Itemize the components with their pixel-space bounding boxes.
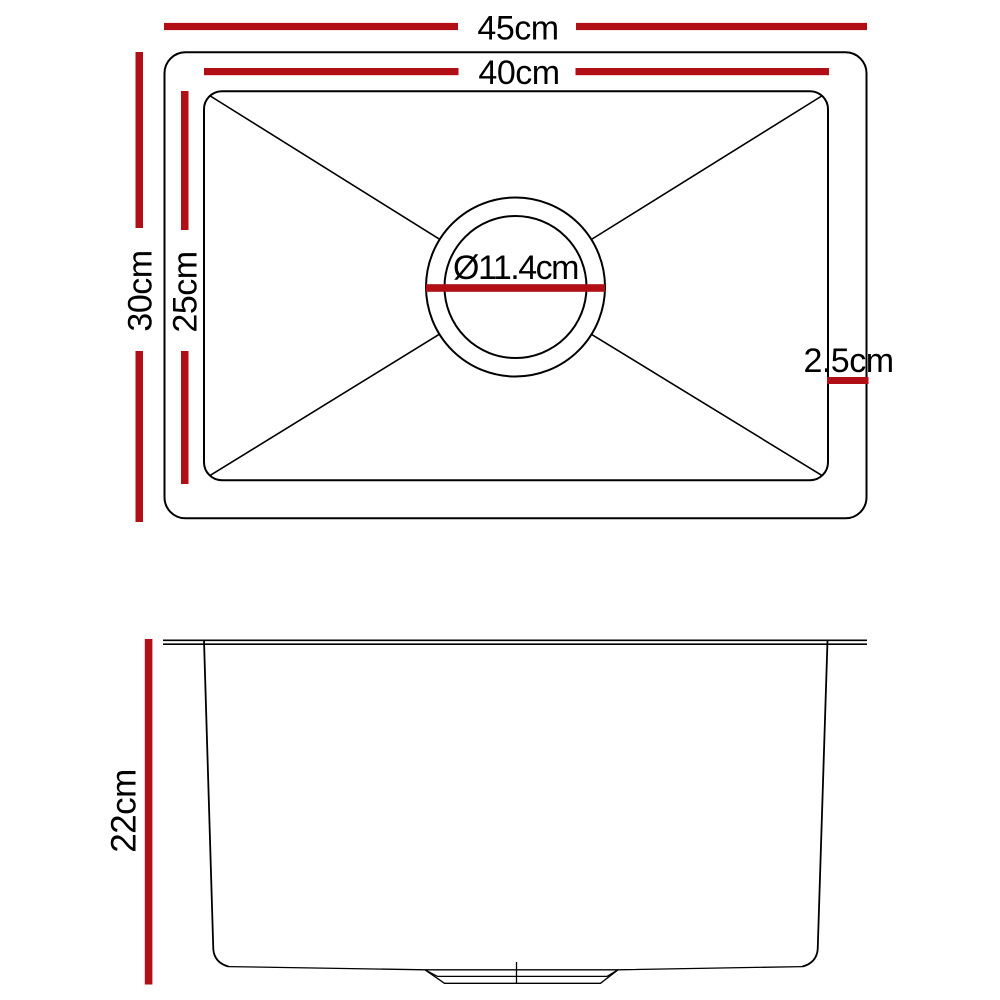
svg-text:45cm: 45cm xyxy=(477,10,558,48)
svg-text:22cm: 22cm xyxy=(105,769,144,853)
svg-text:40cm: 40cm xyxy=(478,54,559,92)
svg-text:2.5cm: 2.5cm xyxy=(803,342,893,380)
svg-text:Ø11.4cm: Ø11.4cm xyxy=(453,249,578,287)
svg-text:30cm: 30cm xyxy=(122,250,160,331)
svg-text:25cm: 25cm xyxy=(167,251,205,332)
